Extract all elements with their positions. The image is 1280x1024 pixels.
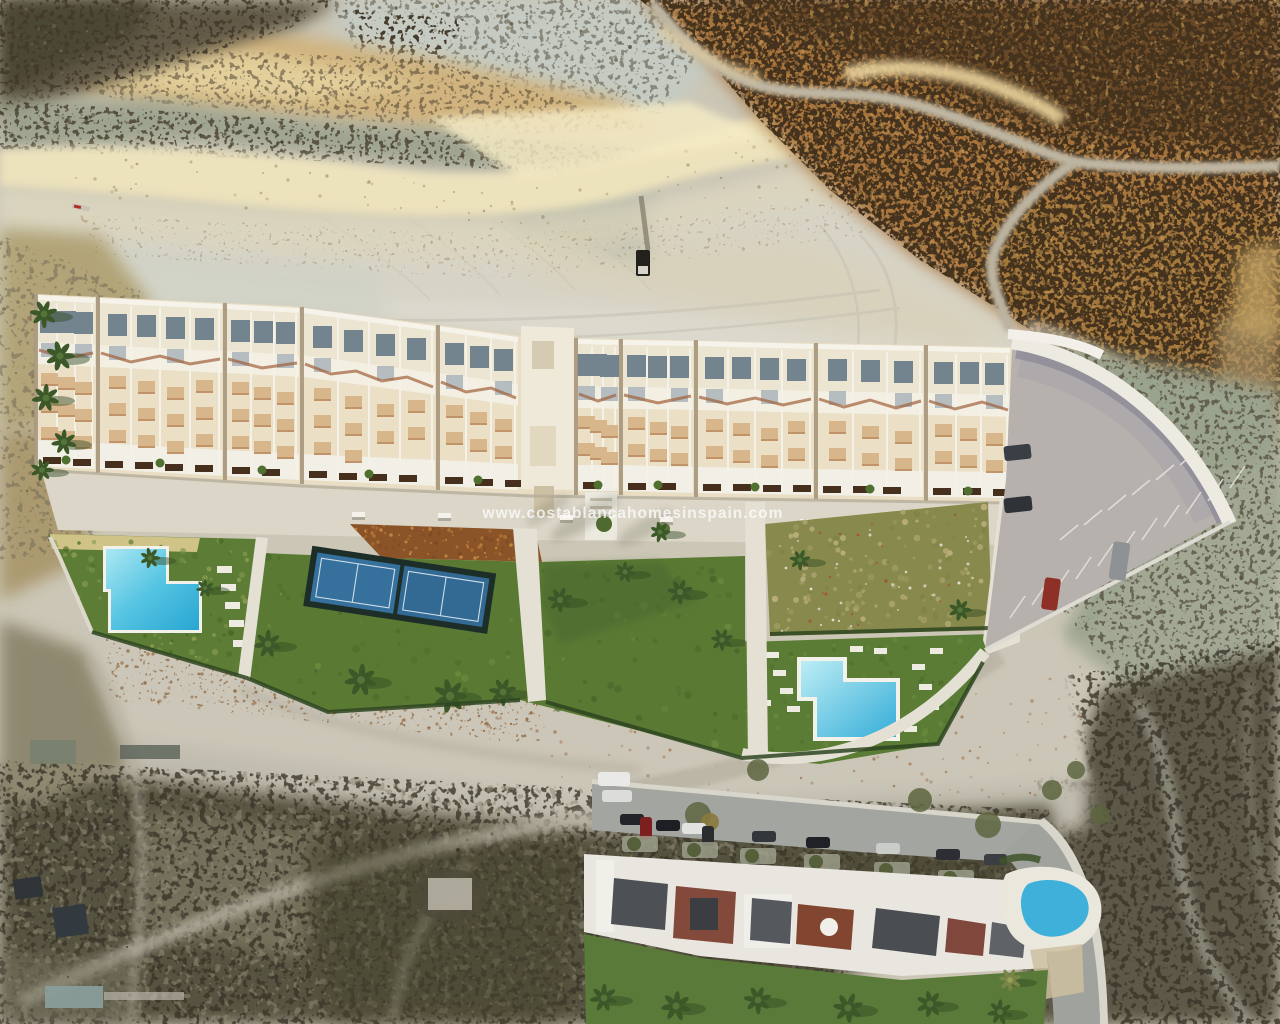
svg-text:www.costablancahomesinspain.co: www.costablancahomesinspain.com (482, 505, 784, 522)
